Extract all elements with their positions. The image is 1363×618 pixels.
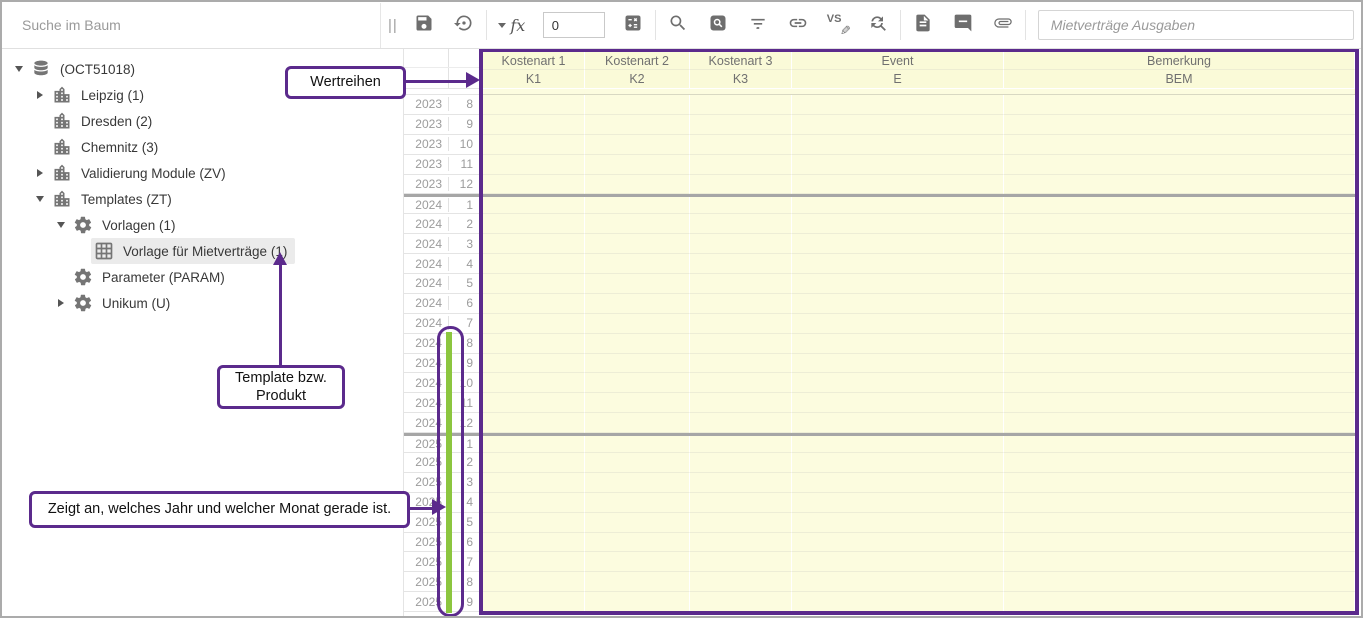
navigation-tree: (OCT51018)Leipzig (1)Dresden (2)Chemnitz…	[2, 48, 404, 616]
row-header-row: 20238	[404, 95, 479, 115]
grid-cell[interactable]	[1004, 155, 1355, 175]
grid-cell[interactable]	[792, 274, 1004, 294]
grid-cell[interactable]	[792, 373, 1004, 393]
search-icon	[668, 13, 688, 38]
grid-row	[483, 95, 1355, 115]
grid-cell[interactable]	[483, 393, 585, 413]
grid-cell[interactable]	[690, 493, 792, 513]
comment-icon	[953, 13, 973, 38]
grid-cell[interactable]	[690, 155, 792, 175]
grid-cell[interactable]	[585, 234, 690, 254]
tree-search	[2, 3, 381, 48]
grid-cell[interactable]	[792, 436, 1004, 453]
grid-row	[483, 533, 1355, 553]
document-icon	[913, 13, 933, 38]
tree-node[interactable]: Leipzig (1)	[49, 82, 152, 108]
row-header-row: 202310	[404, 135, 479, 155]
tree-node[interactable]: Validierung Module (ZV)	[49, 160, 234, 186]
grid-cell[interactable]	[792, 513, 1004, 533]
annotation-arrowhead-icon	[432, 499, 446, 515]
filter-icon	[748, 13, 768, 38]
grid-cell[interactable]	[1004, 234, 1355, 254]
grid-cell[interactable]	[483, 115, 585, 135]
row-header-row: 20242	[404, 214, 479, 234]
tree-node[interactable]: (OCT51018)	[28, 56, 143, 82]
annotation-template-product: Template bzw. Produkt	[217, 365, 345, 409]
grid-row	[483, 473, 1355, 493]
row-header-row: 20243	[404, 234, 479, 254]
row-header-row: 20241	[404, 194, 479, 214]
grid-cell[interactable]	[690, 197, 792, 214]
row-year-cell: 2023	[404, 117, 449, 131]
grid-cell[interactable]	[792, 234, 1004, 254]
tree-item[interactable]: Chemnitz (3)	[2, 134, 403, 160]
grid-cell[interactable]	[690, 373, 792, 393]
gear-icon	[73, 267, 93, 287]
value-grid: Kostenart 1Kostenart 2Kostenart 3EventBe…	[479, 48, 1359, 615]
grid-cell[interactable]	[690, 314, 792, 334]
grid-cell[interactable]	[483, 436, 585, 453]
building-icon	[52, 189, 72, 209]
grid-cell[interactable]	[1004, 493, 1355, 513]
grid-cell[interactable]	[585, 533, 690, 553]
grid-cell[interactable]	[792, 115, 1004, 135]
tree-node[interactable]: Dresden (2)	[49, 108, 160, 134]
grid-cell[interactable]	[690, 436, 792, 453]
chevron-down-icon	[498, 23, 506, 28]
grid-cell[interactable]	[1004, 175, 1355, 195]
grid-cell[interactable]	[690, 453, 792, 473]
building-icon	[52, 137, 72, 157]
tree-item-label: Validierung Module (ZV)	[81, 166, 226, 181]
comment-button[interactable]	[943, 5, 983, 45]
grid-cell[interactable]	[792, 453, 1004, 473]
grid-cell[interactable]	[585, 334, 690, 354]
grid-cell[interactable]	[792, 197, 1004, 214]
grid-cell[interactable]	[690, 135, 792, 155]
panel-splitter-handle[interactable]: ||	[381, 17, 404, 34]
expand-down-icon[interactable]	[10, 66, 28, 72]
grid-cell[interactable]	[1004, 135, 1355, 155]
tree-item-label: Parameter (PARAM)	[102, 270, 225, 285]
grid-cell[interactable]	[585, 493, 690, 513]
grid-cell[interactable]	[690, 274, 792, 294]
refresh-search-button[interactable]	[858, 5, 898, 45]
row-year-cell: 2023	[404, 157, 449, 171]
grid-cell[interactable]	[1004, 354, 1355, 374]
grid-body	[483, 95, 1355, 612]
save-icon	[414, 13, 434, 38]
grid-cell[interactable]	[585, 393, 690, 413]
column-code: K3	[690, 70, 792, 89]
row-year-cell: 2024	[404, 198, 449, 212]
annotation-arrowhead-icon	[273, 252, 287, 265]
grid-row	[483, 274, 1355, 294]
grid-cell[interactable]	[690, 175, 792, 195]
tree-node[interactable]: Vorlagen (1)	[70, 212, 184, 238]
grid-cell[interactable]	[585, 413, 690, 433]
grid-cell[interactable]	[483, 513, 585, 533]
tree-item[interactable]: Parameter (PARAM)	[2, 264, 403, 290]
grid-cell[interactable]	[1004, 95, 1355, 115]
column-code: K1	[483, 70, 585, 89]
tree-node[interactable]: Vorlage für Mietverträge (1)	[91, 238, 295, 264]
grid-cell[interactable]	[483, 552, 585, 572]
grid-cell[interactable]	[1004, 436, 1355, 453]
grid-cell[interactable]	[483, 453, 585, 473]
grid-cell[interactable]	[483, 175, 585, 195]
database-icon	[31, 59, 51, 79]
expand-down-icon[interactable]	[31, 196, 49, 202]
tree-item-label: Vorlagen (1)	[102, 218, 176, 233]
grid-cell[interactable]	[585, 155, 690, 175]
grid-row	[483, 294, 1355, 314]
app-window: || fx VS ✎	[0, 0, 1363, 618]
grid-cell[interactable]	[792, 572, 1004, 592]
grid-row	[483, 393, 1355, 413]
tree-item[interactable]: Unikum (U)	[2, 290, 403, 316]
link-button[interactable]	[778, 5, 818, 45]
tree-item[interactable]: Vorlagen (1)	[2, 212, 403, 238]
grid-cell[interactable]	[690, 473, 792, 493]
grid-cell[interactable]	[690, 234, 792, 254]
grid-cell[interactable]	[690, 533, 792, 553]
calculator-icon	[623, 13, 643, 38]
grid-cell[interactable]	[585, 552, 690, 572]
grid-cell[interactable]	[792, 214, 1004, 234]
grid-row	[483, 493, 1355, 513]
grid-cell[interactable]	[585, 254, 690, 274]
history-button[interactable]	[444, 5, 484, 45]
grid-cell[interactable]	[585, 513, 690, 533]
annotation-arrow-line	[279, 264, 282, 365]
sheet-name-input[interactable]	[1038, 10, 1354, 40]
grid-cell[interactable]	[690, 95, 792, 115]
grid-row	[483, 135, 1355, 155]
grid-cell[interactable]	[1004, 393, 1355, 413]
grid-cell[interactable]	[483, 135, 585, 155]
refresh-search-icon	[868, 13, 888, 38]
toolbar-divider	[1025, 10, 1026, 40]
grid-cell[interactable]	[792, 533, 1004, 553]
grid-cell[interactable]	[483, 294, 585, 314]
grid-cell[interactable]	[483, 592, 585, 612]
row-month-cell: 10	[449, 137, 479, 151]
grid-cell[interactable]	[690, 552, 792, 572]
toolbar: || fx VS ✎	[2, 2, 1361, 49]
grid-cell[interactable]	[585, 95, 690, 115]
toolbar-divider	[655, 10, 656, 40]
grid-cell[interactable]	[1004, 197, 1355, 214]
row-month-cell: 12	[449, 177, 479, 191]
grid-row	[483, 513, 1355, 533]
calculator-button[interactable]	[613, 5, 653, 45]
row-month-cell: 3	[449, 237, 479, 251]
grid-row	[483, 433, 1355, 453]
row-month-cell: 6	[449, 296, 479, 310]
toolbar-divider	[486, 10, 487, 40]
grid-cell[interactable]	[792, 155, 1004, 175]
grid-cell[interactable]	[585, 453, 690, 473]
tree-search-input[interactable]	[2, 17, 380, 33]
compare-edit-button[interactable]: VS ✎	[818, 5, 858, 45]
grid-cell[interactable]	[792, 552, 1004, 572]
grid-cell[interactable]	[585, 592, 690, 612]
row-month-cell: 5	[449, 276, 479, 290]
row-header-row: 202312	[404, 175, 479, 195]
row-year-cell: 2024	[404, 296, 449, 310]
grid-cell[interactable]	[483, 533, 585, 553]
grid-header-codes: K1K2K3EBEM	[483, 70, 1355, 89]
building-icon	[52, 111, 72, 131]
tree-item-label: Chemnitz (3)	[81, 140, 158, 155]
column-code: E	[792, 70, 1004, 89]
grid-cell[interactable]	[690, 393, 792, 413]
formula-icon: fx	[510, 16, 525, 35]
grid-cell[interactable]	[690, 413, 792, 433]
grid-row	[483, 354, 1355, 374]
grid-cell[interactable]	[483, 95, 585, 115]
grid-cell[interactable]	[585, 473, 690, 493]
grid-cell[interactable]	[483, 473, 585, 493]
grid-row	[483, 334, 1355, 354]
row-year-cell: 2024	[404, 276, 449, 290]
column-title: Kostenart 2	[585, 52, 690, 70]
tree-item-label: Unikum (U)	[102, 296, 170, 311]
grid-row	[483, 115, 1355, 135]
grid-cell[interactable]	[1004, 314, 1355, 334]
tree-item[interactable]: Dresden (2)	[2, 108, 403, 134]
grid-cell[interactable]	[792, 175, 1004, 195]
grid-cell[interactable]	[585, 373, 690, 393]
grid-cell[interactable]	[690, 592, 792, 612]
grid-cell[interactable]	[1004, 513, 1355, 533]
grid-row	[483, 572, 1355, 592]
grid-cell[interactable]	[792, 493, 1004, 513]
grid-row	[483, 314, 1355, 334]
attachment-button[interactable]	[983, 5, 1023, 45]
grid-cell[interactable]	[792, 354, 1004, 374]
toolbar-divider	[900, 10, 901, 40]
row-month-cell: 9	[449, 117, 479, 131]
grid-cell[interactable]	[585, 135, 690, 155]
find-in-grid-button[interactable]	[698, 5, 738, 45]
grid-cell[interactable]	[585, 274, 690, 294]
annotation-arrow-line	[406, 80, 466, 83]
row-year-cell: 2024	[404, 237, 449, 251]
pencil-icon: ✎	[840, 23, 851, 39]
grid-cell[interactable]	[1004, 115, 1355, 135]
grid-row	[483, 175, 1355, 195]
expand-down-icon[interactable]	[52, 222, 70, 228]
grid-cell[interactable]	[483, 334, 585, 354]
grid-cell[interactable]	[690, 214, 792, 234]
grid-cell[interactable]	[690, 513, 792, 533]
expand-right-icon[interactable]	[31, 91, 49, 99]
grid-cell[interactable]	[792, 413, 1004, 433]
grid-cell[interactable]	[1004, 453, 1355, 473]
column-title: Bemerkung	[1004, 52, 1355, 70]
grid-cell[interactable]	[585, 175, 690, 195]
grid-cell[interactable]	[585, 314, 690, 334]
row-header-row: 20239	[404, 115, 479, 135]
tree-node[interactable]: Parameter (PARAM)	[70, 264, 233, 290]
grid-header-titles: Kostenart 1Kostenart 2Kostenart 3EventBe…	[483, 52, 1355, 70]
row-month-cell: 2	[449, 217, 479, 231]
annotation-arrow-line	[410, 507, 432, 510]
tree-node[interactable]: Templates (ZT)	[49, 186, 180, 212]
row-month-cell: 4	[449, 257, 479, 271]
row-year-cell: 2023	[404, 137, 449, 151]
row-header-row: 20246	[404, 294, 479, 314]
tree-item-label: Vorlage für Mietverträge (1)	[123, 244, 287, 259]
attachment-icon	[993, 13, 1013, 38]
grid-cell[interactable]	[690, 354, 792, 374]
filter-button[interactable]	[738, 5, 778, 45]
link-icon	[788, 13, 808, 38]
tree-item-label: Dresden (2)	[81, 114, 152, 129]
grid-cell[interactable]	[792, 592, 1004, 612]
grid-cell[interactable]	[792, 473, 1004, 493]
grid-cell[interactable]	[1004, 533, 1355, 553]
grid-row	[483, 194, 1355, 214]
row-header-row: 20244	[404, 254, 479, 274]
grid-cell[interactable]	[585, 436, 690, 453]
grid-cell[interactable]	[1004, 294, 1355, 314]
grid-cell[interactable]	[690, 254, 792, 274]
grid-cell[interactable]	[1004, 572, 1355, 592]
grid-cell[interactable]	[1004, 592, 1355, 612]
compare-edit-icon: VS ✎	[827, 14, 849, 36]
grid-cell[interactable]	[792, 294, 1004, 314]
column-title: Event	[792, 52, 1004, 70]
annotation-wertreihen: Wertreihen	[285, 66, 406, 99]
current-period-highlight-outline	[437, 326, 464, 617]
grid-cell[interactable]	[792, 314, 1004, 334]
row-header-row: 20245	[404, 274, 479, 294]
grid-cell[interactable]	[690, 115, 792, 135]
grid-cell[interactable]	[690, 294, 792, 314]
grid-cell[interactable]	[483, 234, 585, 254]
row-header-blank	[404, 48, 479, 68]
grid-row	[483, 155, 1355, 175]
row-year-cell: 2024	[404, 257, 449, 271]
grid-cell[interactable]	[483, 197, 585, 214]
save-button[interactable]	[404, 5, 444, 45]
grid-cell[interactable]	[483, 314, 585, 334]
grid-cell[interactable]	[585, 294, 690, 314]
grid-cell[interactable]	[1004, 254, 1355, 274]
value-input[interactable]	[543, 12, 605, 38]
grid-row	[483, 552, 1355, 572]
grid-cell[interactable]	[585, 197, 690, 214]
column-title: Kostenart 1	[483, 52, 585, 70]
row-year-cell: 2023	[404, 97, 449, 111]
grid-cell[interactable]	[1004, 274, 1355, 294]
grid-cell[interactable]	[792, 254, 1004, 274]
grid-row	[483, 373, 1355, 393]
grid-cell[interactable]	[792, 393, 1004, 413]
grid-cell[interactable]	[585, 214, 690, 234]
row-month-cell: 11	[449, 157, 479, 171]
grid-cell[interactable]	[585, 572, 690, 592]
column-title: Kostenart 3	[690, 52, 792, 70]
building-icon	[52, 85, 72, 105]
building-icon	[52, 163, 72, 183]
tree-node[interactable]: Unikum (U)	[70, 290, 178, 316]
grid-cell[interactable]	[792, 135, 1004, 155]
column-code: K2	[585, 70, 690, 89]
row-year-cell: 2023	[404, 177, 449, 191]
grid-row	[483, 453, 1355, 473]
expand-right-icon[interactable]	[52, 299, 70, 307]
row-header-row: 202311	[404, 155, 479, 175]
search-button[interactable]	[658, 5, 698, 45]
grid-cell[interactable]	[1004, 413, 1355, 433]
grid-cell[interactable]	[483, 413, 585, 433]
grid-row	[483, 413, 1355, 433]
row-month-cell: 8	[449, 97, 479, 111]
grid-row	[483, 592, 1355, 612]
annotation-template-label: Template bzw. Produkt	[222, 369, 340, 405]
grid-row	[483, 254, 1355, 274]
tree-item[interactable]: Vorlage für Mietverträge (1)	[2, 238, 403, 264]
formula-dropdown-button[interactable]: fx	[489, 5, 535, 45]
grid-cell[interactable]	[483, 254, 585, 274]
annotation-current-period: Zeigt an, welches Jahr und welcher Monat…	[29, 491, 410, 528]
grid-cell[interactable]	[690, 334, 792, 354]
tree-item[interactable]: Templates (ZT)	[2, 186, 403, 212]
grid-cell[interactable]	[585, 354, 690, 374]
tree-item-label: Templates (ZT)	[81, 192, 172, 207]
grid-cell[interactable]	[1004, 373, 1355, 393]
column-code: BEM	[1004, 70, 1355, 89]
grid-cell[interactable]	[1004, 334, 1355, 354]
document-button[interactable]	[903, 5, 943, 45]
tree-item[interactable]: Validierung Module (ZV)	[2, 160, 403, 186]
grid-cell[interactable]	[792, 334, 1004, 354]
grid-cell[interactable]	[483, 373, 585, 393]
annotation-wertreihen-label: Wertreihen	[310, 73, 381, 91]
grid-cell[interactable]	[1004, 214, 1355, 234]
grid-cell[interactable]	[690, 572, 792, 592]
history-icon	[454, 13, 474, 38]
grid-cell[interactable]	[483, 274, 585, 294]
row-year-cell: 2024	[404, 217, 449, 231]
grid-cell[interactable]	[483, 354, 585, 374]
table-icon	[94, 241, 114, 261]
grid-cell[interactable]	[1004, 552, 1355, 572]
grid-cell[interactable]	[483, 214, 585, 234]
grid-cell[interactable]	[585, 115, 690, 135]
find-in-grid-icon	[708, 13, 728, 38]
grid-cell[interactable]	[1004, 473, 1355, 493]
row-month-cell: 1	[449, 198, 479, 212]
annotation-current-period-label: Zeigt an, welches Jahr und welcher Monat…	[48, 500, 391, 518]
grid-cell[interactable]	[483, 572, 585, 592]
tree-node[interactable]: Chemnitz (3)	[49, 134, 166, 160]
gear-icon	[73, 215, 93, 235]
grid-cell[interactable]	[483, 493, 585, 513]
annotation-arrowhead-icon	[466, 72, 480, 88]
grid-row	[483, 234, 1355, 254]
grid-row	[483, 214, 1355, 234]
expand-right-icon[interactable]	[31, 169, 49, 177]
grid-cell[interactable]	[483, 155, 585, 175]
tree-item-label: (OCT51018)	[60, 62, 135, 77]
tree-item-label: Leipzig (1)	[81, 88, 144, 103]
grid-cell[interactable]	[792, 95, 1004, 115]
